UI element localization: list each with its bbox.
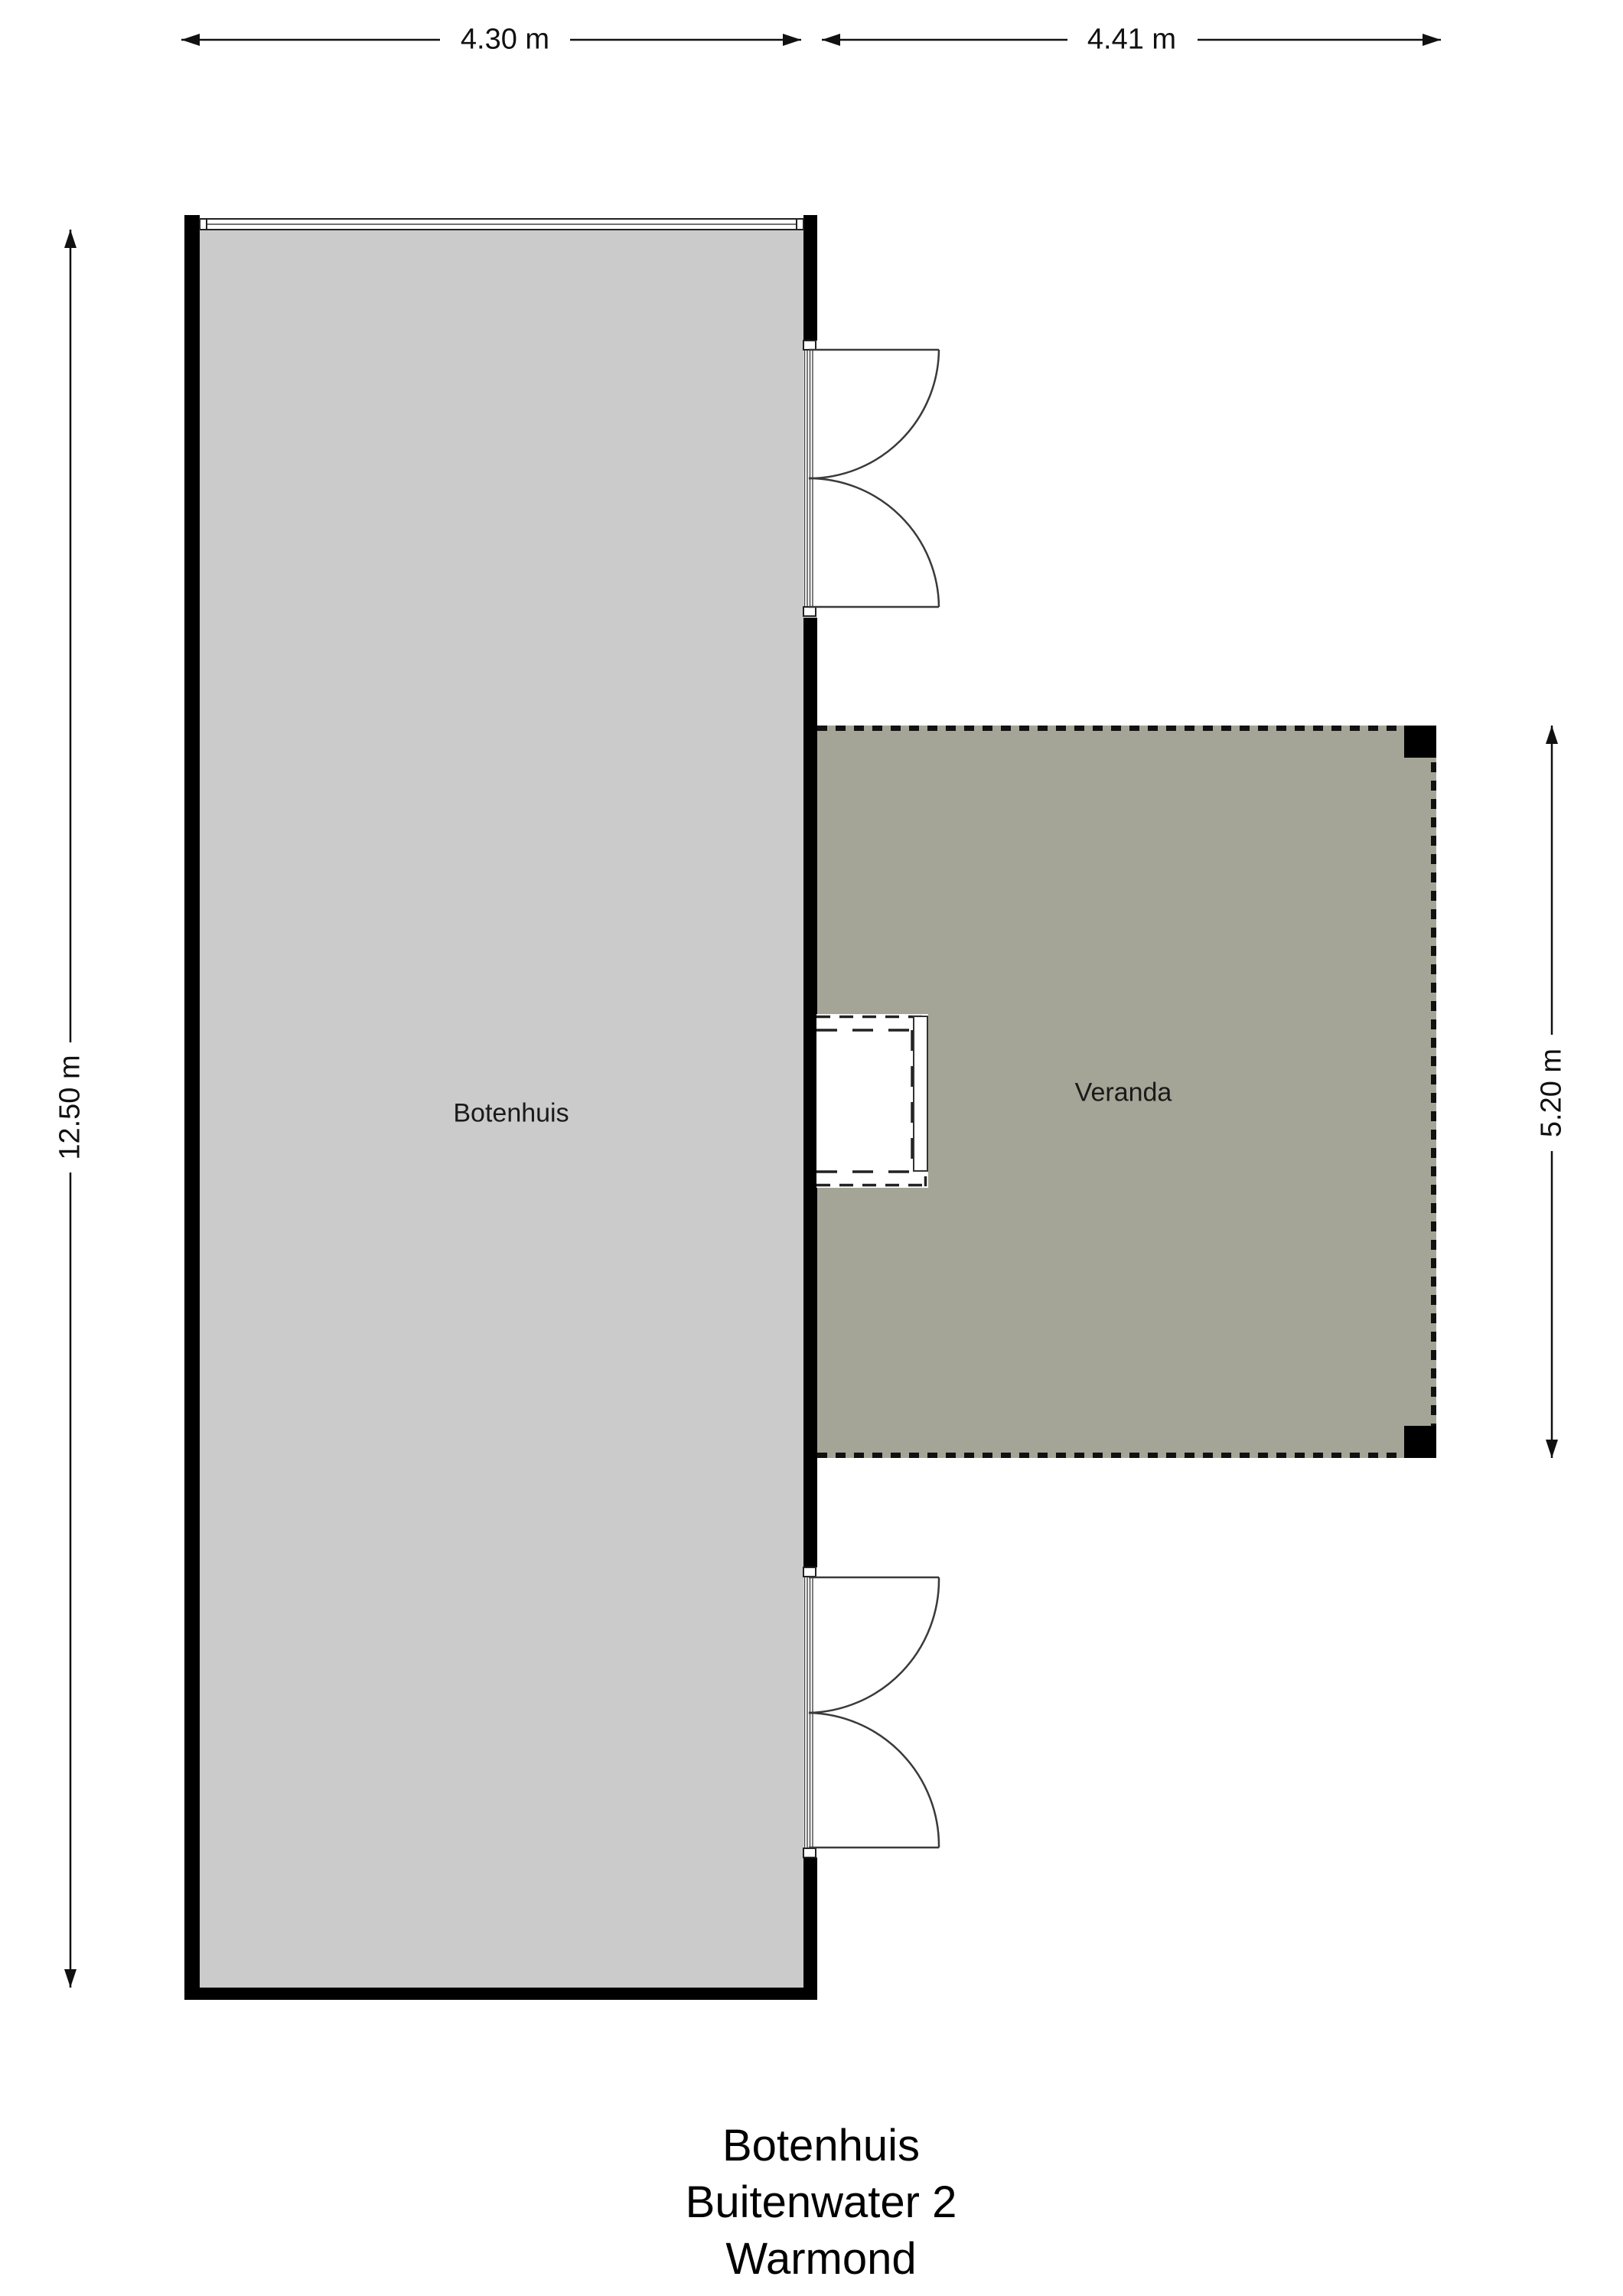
window-end-block-right (797, 219, 803, 230)
wall-right-middle-segment (803, 618, 817, 1567)
plan-title-line-3: Warmond (686, 2231, 957, 2288)
dimension-label-veranda-depth: 5.20 m (1536, 1049, 1569, 1137)
wall-right-bottom-segment (803, 1857, 817, 2000)
storage-box-side-strip (914, 1016, 927, 1171)
wall-bottom (184, 1988, 817, 2000)
plan-title: Botenhuis Buitenwater 2 Warmond (686, 2118, 957, 2288)
floor-plan-drawing (0, 0, 1623, 2296)
veranda-post-bottom-right (1404, 1426, 1436, 1458)
plan-title-line-1: Botenhuis (686, 2118, 957, 2174)
top-window (200, 219, 803, 230)
room-label-veranda: Veranda (1075, 1078, 1172, 1108)
door-hinge-block (803, 607, 816, 616)
double-door-lower (803, 1567, 939, 1857)
plan-title-line-2: Buitenwater 2 (686, 2174, 957, 2231)
veranda-storage-box (816, 1014, 928, 1188)
dimension-label-botenhuis-depth: 12.50 m (54, 1055, 87, 1159)
door-leaves-upper (809, 350, 939, 607)
dimension-label-botenhuis-width: 4.30 m (461, 24, 549, 57)
window-end-block-left (200, 219, 207, 230)
wall-left (184, 215, 200, 2000)
room-label-botenhuis: Botenhuis (453, 1099, 569, 1129)
dimension-label-veranda-width: 4.41 m (1087, 24, 1176, 57)
wall-right-top-segment (803, 215, 817, 341)
veranda-post-top-right (1404, 726, 1436, 758)
door-hinge-block (803, 341, 816, 350)
door-hinge-block (803, 1848, 816, 1857)
door-hinge-block (803, 1567, 816, 1577)
door-leaves-lower (809, 1577, 939, 1848)
double-door-upper (803, 341, 939, 616)
floor-plan-page: 4.30 m 4.41 m 12.50 m 5.20 m Botenhuis V… (0, 0, 1623, 2296)
